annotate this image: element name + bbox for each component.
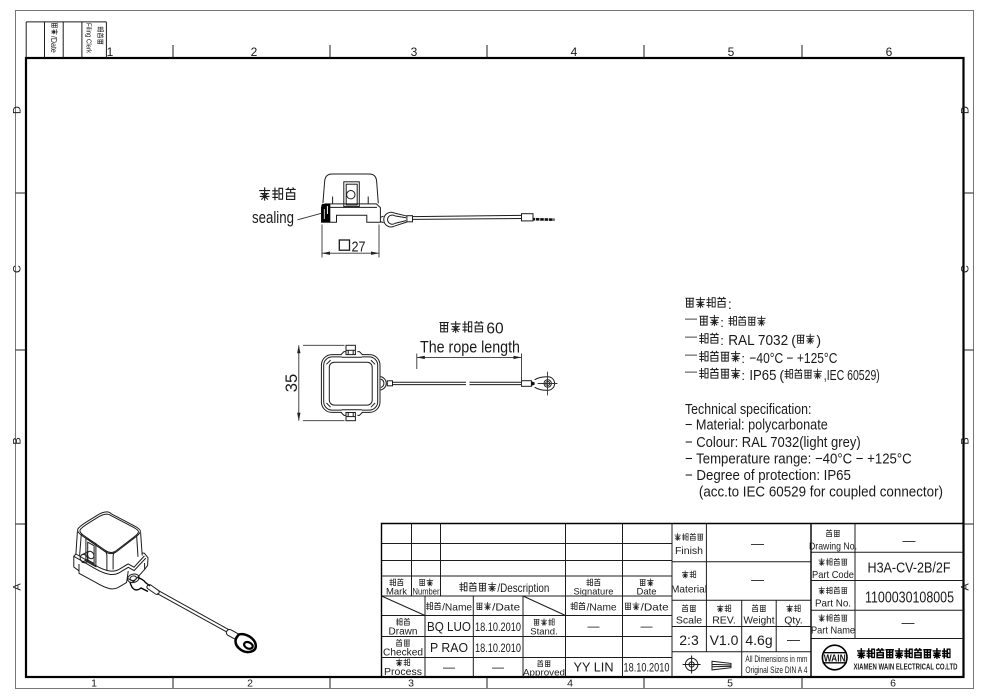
svg-text:Process: Process: [384, 667, 422, 678]
svg-text:The rope length: The rope length: [420, 339, 520, 357]
svg-text:4.6g: 4.6g: [745, 632, 772, 648]
svg-text:3: 3: [408, 678, 414, 690]
svg-text:—: —: [902, 615, 915, 630]
svg-text:27: 27: [352, 239, 366, 256]
svg-text:Finish: Finish: [675, 545, 703, 557]
svg-text:Scale: Scale: [676, 615, 702, 627]
svg-text:BQ LUO: BQ LUO: [427, 620, 471, 634]
svg-text:5: 5: [728, 45, 735, 59]
svg-text:3: 3: [411, 45, 418, 59]
svg-text:/Date: /Date: [492, 602, 520, 614]
svg-text:Original Size DIN A 4: Original Size DIN A 4: [745, 665, 807, 675]
svg-text:Material: Material: [671, 584, 707, 596]
svg-text:18.10.2010: 18.10.2010: [624, 661, 670, 675]
svg-text:WAIN: WAIN: [824, 652, 846, 664]
svg-text:C: C: [12, 265, 24, 273]
svg-text:4: 4: [571, 45, 578, 59]
svg-text:YY LIN: YY LIN: [574, 661, 614, 675]
svg-text:—: —: [588, 619, 600, 633]
svg-text:H3A-CV-2B/2F: H3A-CV-2B/2F: [868, 560, 951, 577]
svg-text::: :: [720, 333, 724, 348]
svg-text:—: —: [685, 347, 697, 361]
svg-text:Part No.: Part No.: [815, 598, 851, 610]
svg-text:Qty.: Qty.: [784, 615, 802, 627]
svg-text:XIAMEN WAIN ELECTRICAL CO.LTD: XIAMEN WAIN ELECTRICAL CO.LTD: [854, 662, 958, 672]
svg-text:Weight: Weight: [744, 615, 775, 627]
svg-text::: :: [741, 368, 745, 383]
svg-text:Part Name: Part Name: [811, 625, 855, 637]
svg-text:Stand.: Stand.: [530, 627, 557, 638]
svg-text:−40°C − +125°C: −40°C − +125°C: [749, 351, 837, 367]
svg-text:2: 2: [247, 678, 253, 690]
svg-text:—: —: [685, 329, 697, 343]
svg-text:All Dimensions in mm: All Dimensions in mm: [745, 654, 807, 664]
svg-text:18.10.2010: 18.10.2010: [475, 641, 521, 655]
svg-text:—: —: [685, 311, 697, 325]
svg-text:/Name: /Name: [442, 602, 472, 614]
svg-text:B: B: [960, 437, 972, 444]
svg-text:Approved: Approved: [523, 668, 565, 679]
svg-text:6: 6: [886, 45, 893, 59]
svg-text:/Date: /Date: [641, 602, 669, 614]
svg-text:(acc.to IEC 60529 for coupled: (acc.to IEC 60529 for coupled connector): [699, 483, 943, 500]
svg-text:C: C: [960, 265, 972, 273]
svg-text:− Degree of protection: IP65: − Degree of protection: IP65: [685, 467, 851, 484]
svg-text:1: 1: [91, 678, 97, 690]
svg-text:—: —: [751, 572, 764, 587]
svg-text:5: 5: [727, 678, 733, 690]
svg-text:A: A: [12, 583, 24, 591]
svg-text:Date: Date: [636, 587, 656, 598]
svg-text:1100030108005: 1100030108005: [865, 590, 954, 607]
svg-text:RAL 7032: RAL 7032: [728, 333, 788, 349]
svg-text:P RAO: P RAO: [430, 641, 468, 655]
svg-text:): ): [816, 332, 821, 348]
svg-text:—: —: [903, 533, 916, 548]
svg-text:—: —: [492, 660, 504, 674]
svg-text:—: —: [443, 660, 455, 674]
svg-text:Number: Number: [413, 587, 440, 598]
svg-text:—: —: [787, 632, 800, 647]
svg-text:IP65: IP65: [749, 368, 776, 384]
svg-text:Drawn: Drawn: [389, 627, 418, 638]
svg-text:2: 2: [251, 45, 258, 59]
svg-text:4: 4: [567, 678, 573, 690]
svg-text:1: 1: [107, 45, 114, 59]
svg-text::: :: [728, 296, 732, 312]
svg-text:sealing: sealing: [252, 209, 294, 227]
svg-text:REV.: REV.: [712, 615, 736, 627]
svg-text:/Description: /Description: [497, 581, 549, 595]
svg-text::: :: [741, 351, 745, 366]
svg-text:B: B: [12, 437, 24, 444]
svg-text:− Material: polycarbonate: − Material: polycarbonate: [685, 417, 828, 434]
svg-text:Signature: Signature: [574, 587, 614, 598]
svg-text:6: 6: [890, 678, 896, 690]
svg-text:,IEC 60529): ,IEC 60529): [824, 368, 880, 384]
svg-text:35: 35: [283, 374, 301, 392]
svg-text:Filing Clerk: Filing Clerk: [85, 23, 94, 53]
svg-text:/Name: /Name: [587, 602, 617, 614]
svg-text:(: (: [779, 367, 784, 383]
svg-text:—: —: [685, 364, 697, 378]
svg-text:D: D: [960, 106, 972, 114]
svg-text:− Colour: RAL 7032(light grey: − Colour: RAL 7032(light grey): [685, 434, 861, 451]
svg-text:Mark: Mark: [386, 587, 407, 598]
svg-text:D: D: [12, 106, 24, 114]
svg-text:—: —: [751, 536, 764, 551]
svg-text::: :: [720, 315, 724, 330]
svg-text:(: (: [791, 332, 796, 348]
svg-text:V1.0: V1.0: [710, 632, 739, 648]
svg-text:A: A: [960, 583, 972, 591]
svg-text:Part Code: Part Code: [812, 569, 854, 581]
svg-text:18.10.2010: 18.10.2010: [475, 620, 521, 634]
svg-text:Drawing No.: Drawing No.: [809, 541, 857, 553]
svg-text:—: —: [641, 619, 653, 633]
svg-text:60: 60: [486, 321, 504, 338]
svg-text:− Temperature range: −40°C −: − Temperature range: −40°C − +125°C: [685, 451, 912, 468]
svg-text:/Date: /Date: [49, 36, 59, 53]
svg-text:2:3: 2:3: [679, 632, 699, 648]
svg-text:Checked: Checked: [383, 648, 423, 659]
